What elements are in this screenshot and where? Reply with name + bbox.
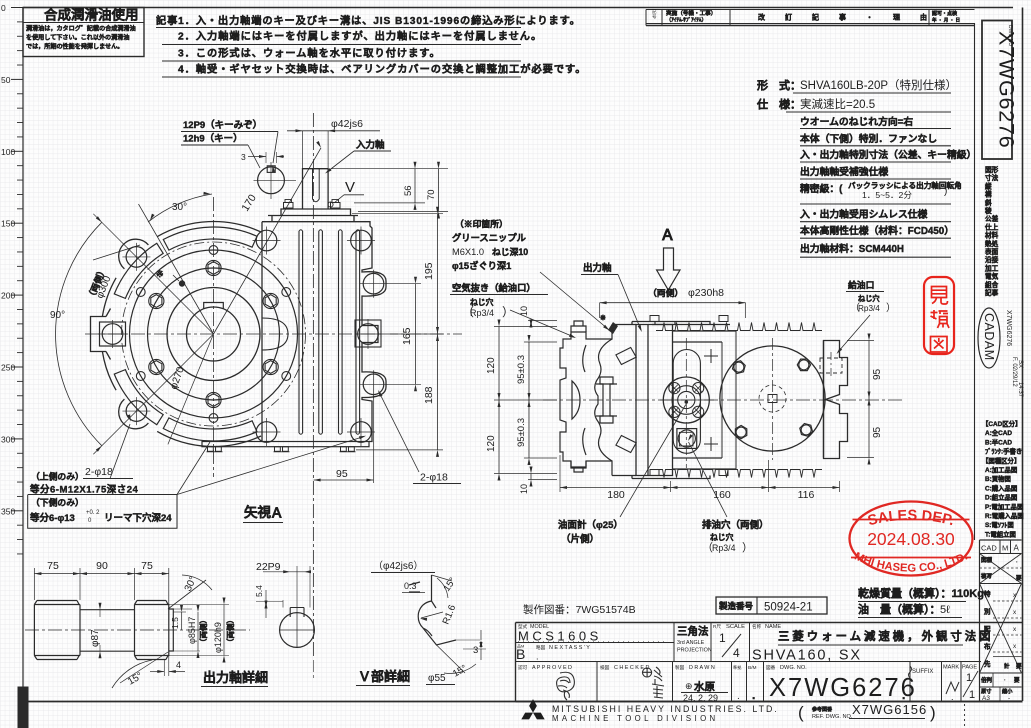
svg-text:略図: 略図: [536, 644, 546, 651]
svg-text:製図: 製図: [675, 664, 685, 671]
svg-text:φ15ざぐり深1: φ15ざぐり深1: [452, 260, 511, 271]
svg-text:形: 形: [757, 79, 768, 92]
svg-text:記: 記: [812, 13, 819, 22]
svg-text:90: 90: [96, 560, 108, 572]
svg-text:稜: 稜: [985, 206, 992, 215]
svg-text:認可: 認可: [518, 664, 528, 671]
svg-text:S:電ｿﾌﾄ図: S:電ｿﾌﾄ図: [985, 520, 1014, 529]
svg-text:三角法: 三角法: [677, 625, 709, 638]
svg-text:φ230h8: φ230h8: [688, 287, 724, 299]
svg-text:200: 200: [1, 291, 15, 301]
svg-text:入力軸: 入力軸: [355, 139, 385, 151]
svg-text:SCALE: SCALE: [726, 624, 745, 630]
svg-text:NAME: NAME: [765, 624, 781, 630]
svg-text:出力軸軸受補強仕様: 出力軸軸受補強仕様: [800, 165, 888, 178]
svg-text:精密級：(: 精密級：(: [800, 182, 843, 195]
svg-text:F. 02/29/12: F. 02/29/12: [1011, 357, 1017, 387]
svg-text:95: 95: [872, 368, 883, 380]
svg-text:56: 56: [403, 185, 414, 196]
svg-text:3: 3: [241, 152, 246, 162]
svg-text:寸法: 寸法: [985, 173, 999, 182]
svg-text:2-φ18: 2-φ18: [85, 466, 113, 478]
svg-text:製作図番：7WG51574B: 製作図番：7WG51574B: [523, 603, 636, 616]
svg-text:X7WG6276: X7WG6276: [995, 31, 1019, 149]
svg-text:出力軸詳細: 出力軸詳細: [203, 670, 268, 685]
svg-text:10: 10: [519, 484, 529, 494]
svg-text:実施（号機・工事）: 実施（号機・工事）: [666, 9, 716, 17]
svg-text:4．軸受・ギヤセット交換時は、ベアリングカバーの交換と調整加: 4．軸受・ギヤセット交換時は、ベアリングカバーの交換と調整加工が必要です。: [178, 63, 586, 76]
svg-text:A P P R O V E D: A P P R O V E D: [532, 665, 572, 671]
svg-text:φ87: φ87: [90, 629, 101, 647]
svg-text:22P9: 22P9: [256, 561, 281, 573]
svg-text:製造番号: 製造番号: [718, 601, 754, 611]
svg-text:A:加工品図: A:加工品図: [985, 465, 1017, 474]
svg-text:（ｱｲﾃﾑ-ｻﾌﾞｱｲﾃﾑ）: （ｱｲﾃﾑ-ｻﾌﾞｱｲﾃﾑ）: [666, 16, 707, 24]
svg-text:B:買物図: B:買物図: [985, 474, 1011, 483]
svg-text:95: 95: [336, 468, 348, 480]
svg-text:・: ・: [1014, 560, 1020, 566]
svg-text:.: .: [737, 691, 740, 702]
svg-text:（下側のみ）: （下側のみ）: [31, 497, 84, 508]
svg-text:出力軸材料：SCM440H: 出力軸材料：SCM440H: [800, 242, 904, 255]
svg-text:300: 300: [1, 434, 15, 444]
svg-text:空気抜き（給油口）: 空気抜き（給油口）: [452, 282, 536, 293]
svg-text:3: 3: [473, 645, 478, 656]
svg-text:1: 1: [969, 689, 975, 701]
svg-text:A: A: [1014, 544, 1020, 553]
svg-text:乾燥質量（概算）：110Kg: 乾燥質量（概算）：110Kg: [858, 586, 984, 600]
svg-text:150: 150: [1, 219, 15, 229]
svg-text:12P9（キーみぞ）: 12P9（キーみぞ）: [183, 119, 262, 131]
svg-text:参考図番: 参考図番: [812, 706, 833, 713]
svg-text:油 量（概算）：: 油 量（概算）：: [858, 602, 941, 616]
svg-text:5ℓ: 5ℓ: [940, 604, 950, 616]
svg-text:図形: 図形: [985, 165, 999, 174]
svg-text:潤滑油は，カタログ゛記載の合成潤滑油: 潤滑油は，カタログ゛記載の合成潤滑油: [26, 25, 136, 33]
svg-text:ねじ穴: ねじ穴: [710, 532, 734, 542]
svg-text:SUFFIX: SUFFIX: [912, 669, 933, 675]
svg-text:70: 70: [426, 189, 437, 200]
svg-text:先: 先: [984, 659, 991, 668]
svg-text:1．5~5．2分: 1．5~5．2分: [862, 190, 912, 200]
svg-text:.: .: [902, 688, 905, 702]
svg-text:180: 180: [607, 489, 625, 501]
svg-text:排油穴（両側）: 排油穴（両側）: [702, 519, 769, 531]
svg-text:（両側）: （両側）: [648, 287, 683, 298]
svg-text:準拠: 準拠: [733, 664, 742, 671]
svg-text:MITSUBISHI HEAVY INDUSTRIES. L: MITSUBISHI HEAVY INDUSTRIES. LTD.: [552, 704, 779, 714]
svg-text:14:37: 14:37: [1017, 382, 1023, 398]
svg-text:MCS160S: MCS160S: [518, 629, 602, 644]
svg-text:X7WG6276: X7WG6276: [1005, 310, 1012, 346]
svg-text:特: 特: [984, 589, 991, 598]
svg-text:要: 要: [1016, 662, 1022, 670]
svg-text:改: 改: [758, 13, 766, 22]
svg-text:V: V: [345, 179, 355, 196]
svg-text:訂: 訂: [785, 13, 792, 22]
svg-text:縮小: 縮小: [1002, 687, 1013, 695]
svg-text:P:電加工品図: P:電加工品図: [985, 502, 1023, 511]
svg-text:【図種区分】: 【図種区分】: [982, 456, 1020, 465]
svg-text:油面計（φ25）: 油面計（φ25）: [558, 519, 623, 531]
svg-text:合成潤滑油使用: 合成潤滑油使用: [44, 7, 139, 23]
svg-text:構: 構: [985, 190, 992, 199]
svg-text:350: 350: [1, 506, 15, 516]
svg-text:では，所期の性能を発揮しません。: では，所期の性能を発揮しません。: [26, 43, 123, 51]
svg-text:本体（下側）特別．ファンなし: 本体（下側）特別．ファンなし: [800, 132, 937, 145]
svg-text:・: ・: [866, 15, 873, 22]
svg-text:R:電購入品図: R:電購入品図: [985, 511, 1024, 520]
svg-text:入・出力軸受用シムレス仕様: 入・出力軸受用シムレス仕様: [799, 208, 928, 221]
svg-text:B: B: [516, 646, 525, 662]
svg-text:M6X1.0: M6X1.0: [452, 247, 484, 257]
svg-text:要: 要: [1016, 574, 1022, 582]
svg-text:T:電組立図: T:電組立図: [985, 529, 1016, 538]
svg-text:D:組立品図: D:組立品図: [985, 493, 1017, 502]
svg-text:1: 1: [719, 631, 726, 645]
svg-text:要: 要: [1014, 676, 1020, 684]
svg-text:）: ）: [886, 302, 896, 314]
svg-text:【CAD区分】: 【CAD区分】: [982, 419, 1021, 428]
svg-text:N E X T A S S ’ Y: N E X T A S S ’ Y: [549, 645, 590, 651]
svg-text:195: 195: [423, 262, 435, 280]
svg-text:（片側）: （片側）: [561, 533, 599, 545]
svg-text:50924-21: 50924-21: [764, 602, 813, 614]
svg-text:75: 75: [141, 560, 153, 572]
svg-text:.: .: [951, 692, 954, 702]
svg-text:φ120h9: φ120h9: [213, 622, 223, 653]
svg-text:Ａ: Ａ: [660, 227, 675, 244]
svg-text:等分6-φ13: 等分6-φ13: [29, 512, 75, 524]
svg-text:Rp3/4: Rp3/4: [712, 543, 736, 553]
svg-text:188: 188: [423, 386, 435, 404]
svg-text:（両側）: （両側）: [225, 616, 235, 646]
svg-text:CADAM: CADAM: [982, 313, 996, 361]
svg-text:実減速比=20.5: 実減速比=20.5: [800, 97, 875, 111]
svg-text:等分6-M12X1.75深さ24: 等分6-M12X1.75深さ24: [29, 484, 139, 496]
svg-text:0.3: 0.3: [404, 581, 417, 591]
svg-text:75: 75: [47, 560, 59, 572]
svg-text:⊕: ⊕: [685, 681, 693, 691]
svg-text:様：: 様：: [779, 97, 801, 111]
svg-text:仕: 仕: [756, 97, 768, 111]
svg-text:ねじ穴: ねじ穴: [858, 294, 880, 303]
svg-text:X7WG6156: X7WG6156: [852, 702, 927, 717]
svg-text:沿接: 沿接: [985, 255, 999, 264]
svg-text:φ85H7: φ85H7: [187, 617, 197, 644]
svg-text:図種: 図種: [981, 556, 993, 564]
svg-text:三菱ウォーム減速機，外観寸法図: 三菱ウォーム減速機，外観寸法図: [778, 629, 994, 643]
svg-text:165: 165: [401, 327, 413, 345]
svg-text:（両側）: （両側）: [198, 616, 208, 646]
svg-text:4: 4: [176, 660, 181, 670]
svg-text:φ55: φ55: [428, 673, 446, 684]
svg-text:φ42js6: φ42js6: [331, 118, 363, 130]
svg-text:組合: 組合: [985, 280, 999, 289]
svg-text:D R A W N: D R A W N: [689, 665, 715, 671]
svg-text:熱処: 熱処: [985, 239, 999, 248]
svg-text:3rd ANGLE: 3rd ANGLE: [677, 640, 705, 646]
svg-text:2-φ18: 2-φ18: [420, 472, 448, 484]
svg-text:記事: 記事: [985, 288, 999, 297]
svg-text:公差: 公差: [985, 214, 999, 223]
svg-text:原寸: 原寸: [981, 687, 992, 695]
svg-text:MACHINE TOOL DIVISION: MACHINE TOOL DIVISION: [552, 714, 719, 723]
svg-text:電気: 電気: [985, 272, 999, 281]
svg-text:B/M: B/M: [748, 665, 757, 671]
svg-text:検図: 検図: [600, 664, 610, 671]
svg-text:認可・点検: 認可・点検: [932, 10, 958, 17]
svg-text:B:半CAD: B:半CAD: [985, 437, 1012, 446]
svg-text:Ｖ部詳細: Ｖ部詳細: [358, 669, 410, 684]
svg-text:116: 116: [798, 489, 815, 501]
svg-text:式：: 式：: [779, 78, 801, 92]
svg-text:倍判: 倍判: [981, 676, 993, 684]
svg-text:水原: 水原: [693, 680, 715, 693]
svg-text:5.4: 5.4: [254, 585, 264, 597]
svg-text:95: 95: [872, 426, 883, 438]
svg-text:MARK: MARK: [943, 665, 959, 671]
svg-text:図番: 図番: [766, 664, 776, 671]
svg-text:SHVA160LB-20P（特別仕様）: SHVA160LB-20P（特別仕様）: [800, 78, 957, 92]
svg-text:DWG. NO.: DWG. NO.: [780, 665, 807, 671]
svg-text:出力軸: 出力軸: [583, 262, 612, 274]
svg-text:）: ）: [742, 541, 753, 554]
svg-text:250: 250: [1, 363, 15, 373]
svg-text:SHVA160, SX: SHVA160, SX: [752, 648, 862, 664]
svg-text:計: 計: [1004, 662, 1010, 670]
svg-text:Ａ: Ａ: [270, 506, 284, 521]
svg-text:): ): [944, 186, 947, 197]
svg-text:A:全CAD: A:全CAD: [985, 428, 1012, 437]
svg-text:.: .: [536, 652, 539, 662]
svg-text:材料: 材料: [984, 231, 999, 240]
svg-text:95±0.3: 95±0.3: [516, 418, 527, 447]
svg-text:50: 50: [1, 75, 11, 85]
svg-text:入・出力軸特別寸法（公差、キー精級）: 入・出力軸特別寸法（公差、キー精級）: [799, 148, 976, 161]
svg-text:理: 理: [893, 13, 900, 22]
svg-text:120: 120: [486, 357, 497, 374]
svg-text:2．入力軸端にはキーを付属しますが、出力軸にはキーを付属しま: 2．入力軸端にはキーを付属しますが、出力軸にはキーを付属しません。: [178, 30, 542, 43]
svg-text:3．この形式は、ウォーム軸を水平に取り付けます。: 3．この形式は、ウォーム軸を水平に取り付けます。: [178, 47, 441, 60]
svg-text:年 ・ 月 ・ 日: 年 ・ 月 ・ 日: [932, 17, 960, 24]
svg-text:120: 120: [486, 435, 497, 452]
svg-text:矢視: 矢視: [244, 504, 271, 520]
svg-text:加工: 加工: [984, 263, 999, 272]
svg-text:記事1．入・出力軸端のキー及びキー溝は、JIS B1301-: 記事1．入・出力軸端のキー及びキー溝は、JIS B1301-1996の締込み形に…: [156, 14, 581, 27]
svg-text:CAD: CAD: [981, 544, 997, 553]
svg-text:縦: 縦: [985, 181, 992, 190]
svg-text:事: 事: [839, 13, 846, 22]
svg-text:由: 由: [920, 13, 927, 22]
svg-text:M: M: [1002, 544, 1008, 553]
svg-text:1.5: 1.5: [170, 617, 180, 629]
svg-text:リーマ下穴深24: リーマ下穴深24: [104, 512, 172, 524]
svg-text:（※印箇所）: （※印箇所）: [455, 218, 508, 229]
svg-text:※: ※: [600, 314, 606, 322]
svg-text:（φ42js6）: （φ42js6）: [373, 560, 423, 572]
svg-text:（上側のみ）: （上側のみ）: [31, 471, 84, 482]
svg-text:24. 2. 29: 24. 2. 29: [683, 693, 718, 703]
svg-text:表面: 表面: [985, 247, 999, 256]
svg-text:90°: 90°: [50, 310, 65, 321]
svg-text:(: (: [798, 703, 804, 722]
svg-text:を使用して下さい。これ以外の潤滑油: を使用して下さい。これ以外の潤滑油: [26, 34, 129, 42]
svg-text:Rp3/4: Rp3/4: [858, 304, 880, 313]
svg-text:別: 別: [983, 607, 991, 616]
svg-text:仕上: 仕上: [984, 222, 999, 231]
svg-text:0: 0: [1, 3, 6, 13]
svg-text:4: 4: [733, 646, 740, 660]
svg-text:.: .: [752, 688, 755, 702]
svg-text:本体高剛性仕様（材料：FCD450）: 本体高剛性仕様（材料：FCD450）: [800, 224, 954, 237]
svg-text:・: ・: [1002, 678, 1008, 684]
svg-text:ウオームのねじれ方向=右: ウオームのねじれ方向=右: [800, 115, 913, 128]
svg-text:PAGE: PAGE: [962, 665, 977, 671]
svg-text:PROJECTION: PROJECTION: [677, 648, 712, 654]
svg-text:）: ）: [502, 305, 514, 319]
svg-text:10: 10: [519, 306, 529, 316]
svg-text:斜: 斜: [984, 198, 992, 207]
svg-text:X7WG6276: X7WG6276: [769, 674, 917, 702]
svg-text:給油口: 給油口: [848, 279, 874, 290]
svg-text:グリースニップル: グリースニップル: [452, 232, 527, 243]
svg-text:SX: SX: [1017, 360, 1023, 368]
svg-text:12h9（キー）: 12h9（キー）: [183, 133, 243, 145]
svg-text:C:購入品図: C:購入品図: [985, 483, 1017, 492]
svg-text:100: 100: [1, 147, 15, 157]
svg-text:95±0.3: 95±0.3: [516, 355, 527, 384]
svg-text:): ): [930, 703, 936, 722]
svg-text:ﾌﾞﾗﾝｸ:手書き: ﾌﾞﾗﾝｸ:手書き: [985, 447, 1022, 456]
svg-text:+0. 2: +0. 2: [86, 510, 100, 516]
svg-text:名称: 名称: [752, 623, 762, 630]
svg-text:C H E C K E D: C H E C K E D: [614, 665, 649, 671]
svg-text:ねじ深10: ねじ深10: [492, 246, 528, 257]
svg-text:2024.08.30: 2024.08.30: [867, 529, 955, 549]
svg-text:REF. DWG. NO.: REF. DWG. NO.: [812, 714, 853, 720]
svg-text:Rp3/4: Rp3/4: [470, 308, 494, 318]
